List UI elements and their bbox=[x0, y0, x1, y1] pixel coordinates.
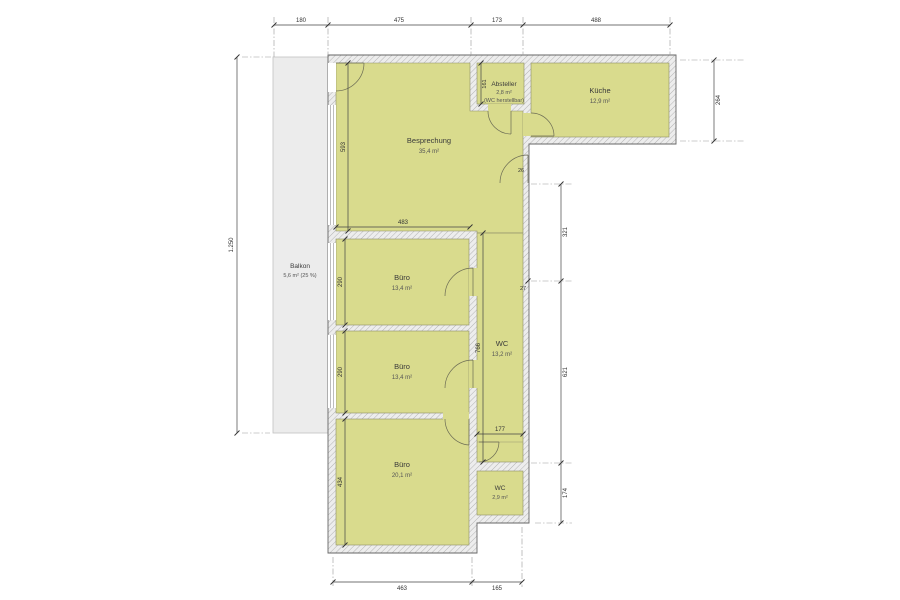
dim-left-total: 1.250 bbox=[229, 237, 235, 253]
dim-top-balcony: 180 bbox=[296, 18, 307, 24]
besprechung-window bbox=[328, 105, 336, 225]
buero-mid-window bbox=[328, 335, 336, 408]
room-fills bbox=[336, 63, 669, 545]
area-buero-bottom: 20,1 m² bbox=[392, 473, 412, 479]
dim-buero-top-h: 290 bbox=[338, 276, 344, 287]
dim-bottom-wc: 165 bbox=[492, 586, 503, 592]
dim-step: 27 bbox=[520, 286, 526, 292]
label-wc-small: WC bbox=[495, 485, 506, 492]
label-besprechung: Besprechung bbox=[407, 136, 451, 145]
extension-line bbox=[680, 60, 745, 141]
dim-buero-mid-h: 290 bbox=[338, 366, 344, 377]
dim-besprechung-w: 483 bbox=[398, 220, 409, 226]
area-kueche: 12,9 m² bbox=[590, 99, 610, 105]
balcony-door-opening bbox=[328, 63, 336, 92]
floor-plan: 180 475 173 488 463 165 1.250 264 321 62… bbox=[0, 0, 900, 600]
room-buero-bottom bbox=[336, 419, 469, 545]
area-absteller: 2,8 m² bbox=[496, 90, 512, 96]
dim-top-kueche: 488 bbox=[591, 18, 602, 24]
absteller-door-opening bbox=[488, 104, 511, 112]
area-wc-small: 2,9 m² bbox=[492, 495, 508, 501]
buero-mid-door-opening bbox=[469, 360, 478, 388]
dim-absteller-h: 161 bbox=[482, 79, 488, 88]
dim-door: 26 bbox=[518, 168, 524, 174]
dim-top-besprechung: 475 bbox=[394, 18, 405, 24]
kueche-door-opening bbox=[523, 113, 532, 136]
note-absteller: (WC herstellbar) bbox=[484, 98, 524, 104]
area-balkon: 5,6 m² (25 %) bbox=[283, 273, 316, 279]
dim-bottom-buero: 463 bbox=[397, 586, 408, 592]
label-wc-long: WC bbox=[496, 339, 509, 348]
label-kueche: Küche bbox=[589, 86, 610, 95]
dim-wc-long-h: 766 bbox=[476, 342, 482, 353]
dim-wc-long-w: 177 bbox=[495, 427, 506, 433]
area-besprechung: 35,4 m² bbox=[419, 149, 439, 155]
dim-top-absteller: 173 bbox=[492, 18, 503, 24]
dim-buero-bottom-h: 434 bbox=[338, 476, 344, 487]
buero-top-window bbox=[328, 243, 336, 320]
dim-wc-small-depth: 174 bbox=[563, 487, 569, 498]
area-buero-top: 13,4 m² bbox=[392, 286, 412, 292]
area-wc-long: 13,2 m² bbox=[492, 352, 512, 358]
label-buero-mid: Büro bbox=[394, 362, 410, 371]
dim-besprechung-h: 593 bbox=[341, 141, 347, 152]
dim-right-upper: 321 bbox=[563, 226, 569, 237]
label-balkon: Balkon bbox=[290, 263, 310, 270]
buero-bottom-door-opening bbox=[443, 412, 469, 420]
balcony-area bbox=[273, 57, 328, 433]
buero-top-door-opening bbox=[469, 268, 478, 296]
label-buero-top: Büro bbox=[394, 273, 410, 282]
dim-right-lower: 621 bbox=[563, 366, 569, 377]
label-absteller: Absteller bbox=[491, 81, 517, 88]
dim-kueche-depth: 264 bbox=[716, 94, 722, 105]
area-buero-mid: 13,4 m² bbox=[392, 375, 412, 381]
room-buero-mid bbox=[336, 331, 469, 413]
extension-line bbox=[274, 17, 670, 57]
label-buero-bottom: Büro bbox=[394, 460, 410, 469]
room-wc-small bbox=[477, 471, 523, 515]
extension-line bbox=[242, 57, 272, 433]
